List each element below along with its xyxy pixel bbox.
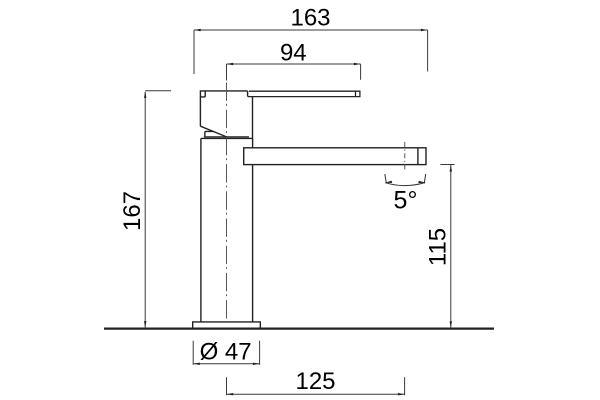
svg-text:163: 163 xyxy=(290,4,330,31)
svg-text:5°: 5° xyxy=(394,187,418,215)
svg-text:115: 115 xyxy=(424,228,451,266)
svg-text:94: 94 xyxy=(280,40,307,67)
svg-text:Ø 47: Ø 47 xyxy=(200,339,252,366)
svg-text:167: 167 xyxy=(119,191,146,231)
svg-text:125: 125 xyxy=(295,368,335,395)
